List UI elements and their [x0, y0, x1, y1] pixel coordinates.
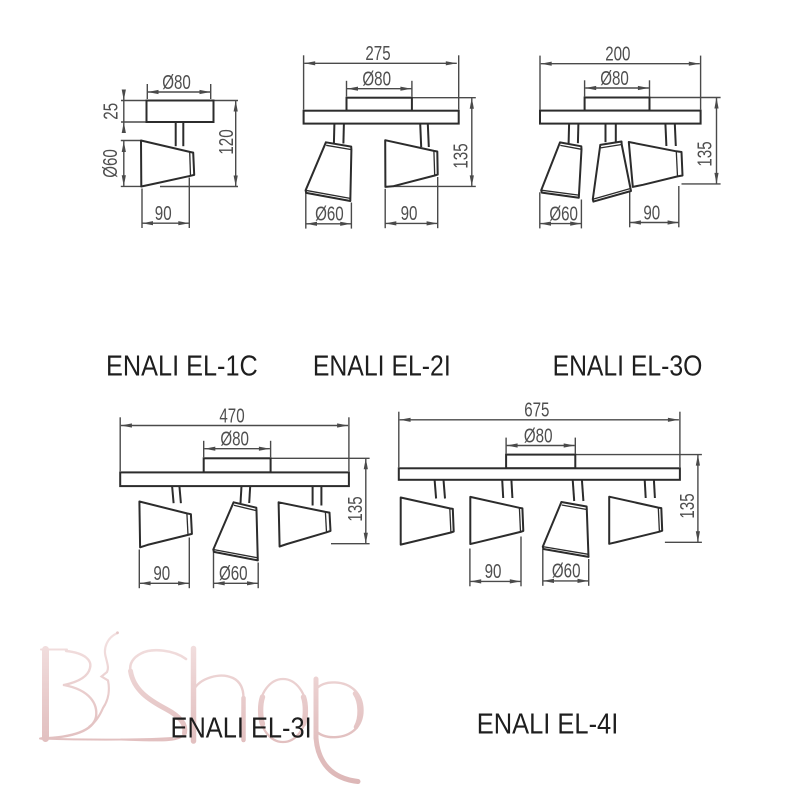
svg-text:Ø80: Ø80: [524, 424, 553, 447]
svg-text:Ø80: Ø80: [220, 427, 249, 450]
svg-text:90: 90: [485, 560, 502, 583]
svg-text:135: 135: [676, 493, 699, 518]
svg-text:90: 90: [153, 562, 170, 585]
svg-text:275: 275: [365, 42, 390, 65]
svg-text:470: 470: [219, 404, 244, 427]
svg-text:675: 675: [524, 398, 549, 421]
svg-text:120: 120: [215, 129, 238, 154]
svg-text:135: 135: [693, 141, 716, 166]
svg-text:Ø60: Ø60: [552, 560, 581, 583]
svg-text:25: 25: [99, 103, 122, 120]
svg-text:90: 90: [643, 201, 660, 224]
svg-text:ENALI EL-3I: ENALI EL-3I: [171, 712, 312, 744]
svg-text:ENALI EL-3O: ENALI EL-3O: [553, 350, 703, 382]
svg-text:Ø80: Ø80: [362, 67, 391, 90]
svg-text:ENALI EL-1C: ENALI EL-1C: [106, 350, 258, 382]
svg-text:200: 200: [605, 42, 630, 65]
svg-text:ENALI EL-2I: ENALI EL-2I: [313, 350, 451, 382]
svg-text:Ø60: Ø60: [315, 202, 344, 225]
svg-text:Ø60: Ø60: [99, 149, 122, 178]
svg-text:Ø80: Ø80: [600, 67, 629, 90]
svg-text:ENALI EL-4I: ENALI EL-4I: [477, 707, 619, 740]
svg-text:135: 135: [344, 496, 367, 521]
svg-text:90: 90: [401, 202, 418, 225]
svg-text:Ø80: Ø80: [162, 71, 191, 94]
svg-text:Ø60: Ø60: [219, 562, 248, 585]
svg-text:135: 135: [449, 143, 472, 168]
svg-text:90: 90: [155, 202, 172, 225]
svg-text:Ø60: Ø60: [549, 202, 578, 225]
